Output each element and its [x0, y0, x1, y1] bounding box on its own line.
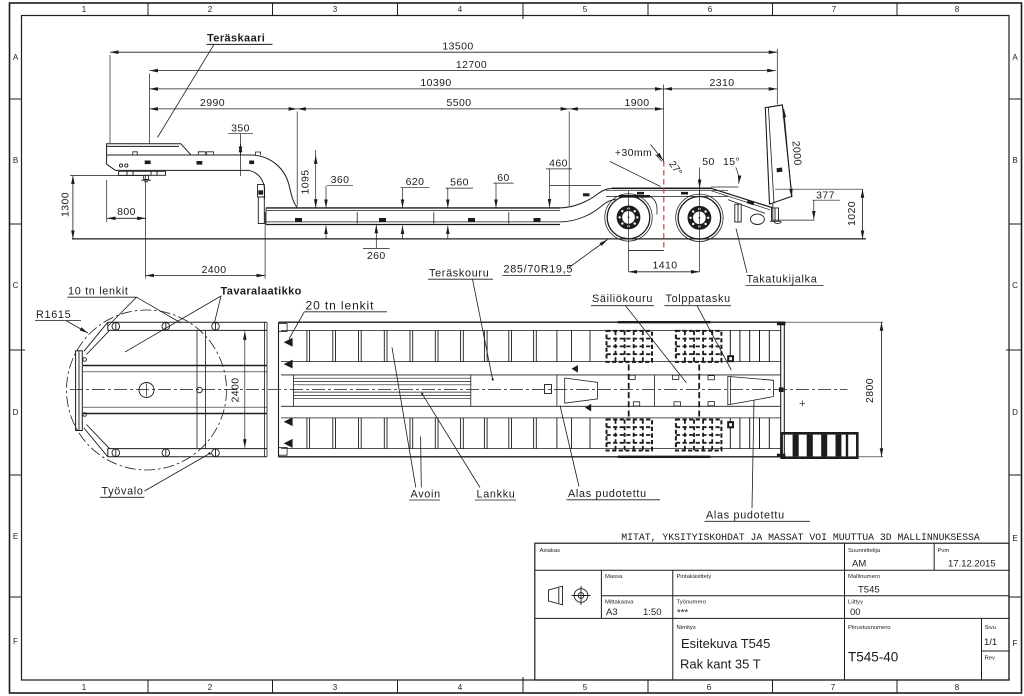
svg-text:360: 360 — [331, 174, 350, 186]
svg-text:Teräskouru: Teräskouru — [429, 268, 489, 280]
svg-text:Työnumero: Työnumero — [677, 600, 707, 606]
svg-text:Rev: Rev — [985, 656, 996, 662]
svg-text:6: 6 — [707, 683, 712, 692]
svg-text:1:50: 1:50 — [643, 607, 662, 618]
svg-text:00: 00 — [850, 607, 861, 618]
svg-text:2400: 2400 — [202, 264, 227, 276]
svg-text:377: 377 — [816, 189, 835, 201]
svg-text:T545: T545 — [858, 585, 880, 596]
svg-text:F: F — [13, 637, 18, 646]
svg-text:8: 8 — [955, 683, 960, 692]
svg-text:2: 2 — [208, 683, 213, 692]
svg-text:2990: 2990 — [200, 97, 225, 109]
svg-text:F: F — [1013, 639, 1018, 648]
svg-text:Pintakäsittely: Pintakäsittely — [677, 574, 712, 580]
svg-text:Sivu: Sivu — [985, 625, 996, 631]
svg-text:1/1: 1/1 — [984, 637, 997, 648]
svg-text:E: E — [1012, 534, 1017, 543]
svg-text:7: 7 — [831, 683, 836, 692]
svg-text:17.12.2015: 17.12.2015 — [948, 559, 996, 570]
svg-text:Alas pudotettu: Alas pudotettu — [706, 510, 785, 522]
svg-text:R1615: R1615 — [36, 309, 71, 321]
svg-text:5: 5 — [583, 5, 588, 14]
svg-text:Pvm: Pvm — [938, 548, 950, 554]
svg-text:1: 1 — [82, 683, 87, 692]
svg-text:Nimitys: Nimitys — [677, 625, 696, 631]
svg-text:A: A — [1012, 53, 1018, 62]
svg-text:Esitekuva T545: Esitekuva T545 — [681, 636, 770, 651]
svg-text:T545-40: T545-40 — [848, 650, 898, 665]
svg-text:Mittakaava: Mittakaava — [605, 600, 634, 606]
svg-text:Massa: Massa — [605, 574, 623, 580]
svg-text:1: 1 — [82, 5, 87, 14]
svg-text:560: 560 — [450, 177, 469, 189]
svg-text:620: 620 — [406, 176, 425, 188]
svg-text:Lankku: Lankku — [477, 488, 516, 500]
svg-text:7: 7 — [832, 5, 837, 14]
svg-text:Tolppatasku: Tolppatasku — [666, 293, 731, 305]
svg-text:MITAT, YKSITYISKOHDAT JA MASSA: MITAT, YKSITYISKOHDAT JA MASSAT VOI MUUT… — [621, 532, 980, 543]
svg-text:2310: 2310 — [710, 77, 735, 89]
svg-text:260: 260 — [367, 250, 386, 262]
svg-text:D: D — [1012, 408, 1018, 417]
svg-text:350: 350 — [231, 123, 250, 135]
svg-text:10390: 10390 — [420, 77, 451, 89]
svg-text:13500: 13500 — [442, 41, 473, 53]
svg-text:50: 50 — [702, 156, 714, 168]
svg-text:15°: 15° — [723, 156, 740, 168]
svg-text:3: 3 — [333, 5, 338, 14]
svg-text:D: D — [13, 408, 19, 417]
svg-text:6: 6 — [708, 5, 713, 14]
svg-text:B: B — [1012, 156, 1017, 165]
svg-text:1300: 1300 — [60, 192, 72, 217]
svg-text:Suunnittelija: Suunnittelija — [848, 548, 881, 554]
svg-text:B: B — [13, 156, 18, 165]
svg-text:10 tn lenkit: 10 tn lenkit — [68, 286, 129, 298]
svg-text:C: C — [1012, 281, 1018, 290]
svg-text:5500: 5500 — [447, 97, 472, 109]
svg-text:AM: AM — [852, 559, 866, 570]
svg-text:Alas pudotettu: Alas pudotettu — [568, 488, 647, 500]
svg-text:8: 8 — [955, 5, 960, 14]
svg-text:Avoin: Avoin — [411, 488, 441, 500]
svg-text:1020: 1020 — [846, 201, 858, 226]
svg-text:12700: 12700 — [456, 59, 487, 71]
svg-text:3: 3 — [333, 683, 338, 692]
svg-text:460: 460 — [549, 158, 568, 170]
svg-text:Rak kant 35 T: Rak kant 35 T — [680, 657, 761, 672]
svg-text:Piirustusnumero: Piirustusnumero — [848, 625, 891, 631]
svg-text:20 tn lenkit: 20 tn lenkit — [306, 299, 375, 313]
svg-text:1900: 1900 — [625, 97, 650, 109]
svg-text:Liittyy: Liittyy — [848, 600, 863, 606]
svg-text:4: 4 — [458, 5, 463, 14]
svg-text:60: 60 — [497, 172, 509, 184]
svg-text:2000: 2000 — [789, 140, 803, 166]
svg-text:2: 2 — [208, 5, 213, 14]
svg-text:4: 4 — [458, 683, 463, 692]
svg-text:285/70R19,5: 285/70R19,5 — [504, 264, 574, 276]
svg-text:Mallinumero: Mallinumero — [848, 574, 881, 580]
svg-text:C: C — [13, 281, 19, 290]
svg-text:A3: A3 — [606, 607, 618, 618]
svg-text:Takatukijalka: Takatukijalka — [747, 274, 818, 286]
svg-text:Säiliökouru: Säiliökouru — [592, 293, 653, 305]
svg-text:2800: 2800 — [864, 378, 876, 403]
svg-text:Työvalo: Työvalo — [102, 486, 144, 498]
svg-text:800: 800 — [117, 206, 136, 218]
svg-text:E: E — [13, 532, 18, 541]
svg-text:Tavaralaatikko: Tavaralaatikko — [221, 286, 302, 298]
svg-text:5: 5 — [583, 683, 588, 692]
svg-text:2400: 2400 — [230, 378, 242, 403]
svg-text:***: *** — [677, 608, 688, 619]
svg-text:A: A — [13, 53, 19, 62]
svg-text:+30mm: +30mm — [615, 147, 652, 159]
svg-text:27°: 27° — [666, 159, 684, 178]
svg-text:1095: 1095 — [300, 170, 312, 195]
svg-text:Asiakas: Asiakas — [540, 548, 561, 554]
svg-text:Teräskaari: Teräskaari — [207, 33, 265, 45]
svg-text:1410: 1410 — [653, 260, 678, 272]
